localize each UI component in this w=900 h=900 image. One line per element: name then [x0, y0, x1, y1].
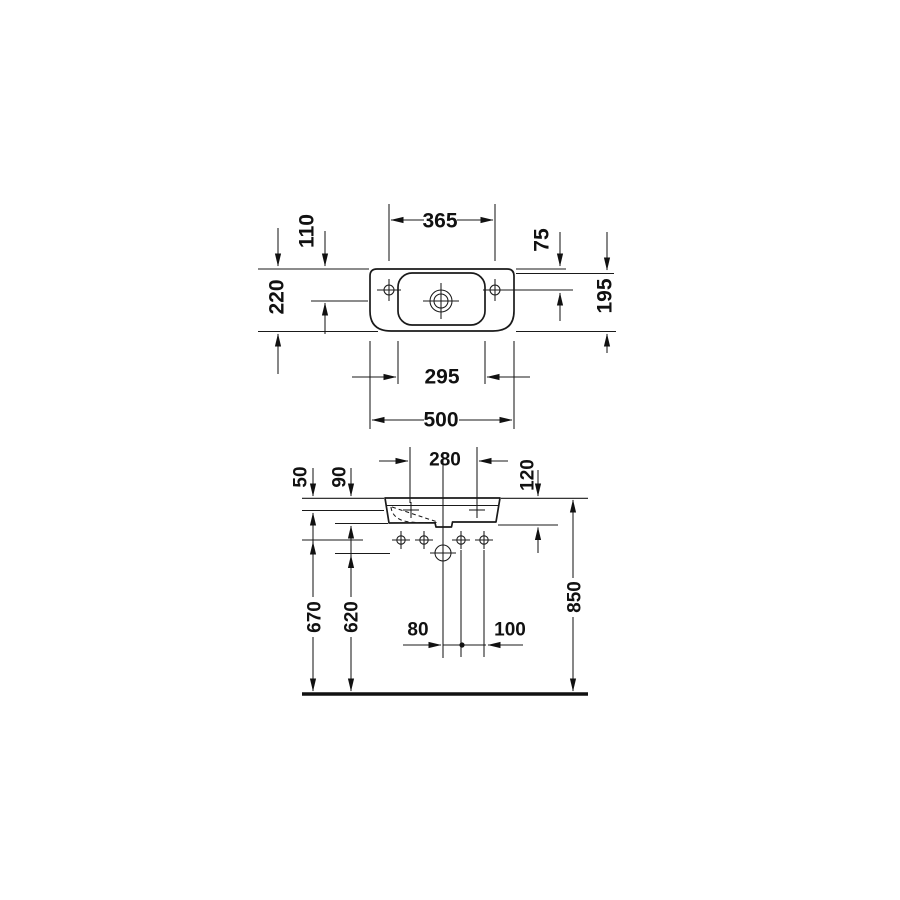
dim-label-365: 365	[422, 210, 457, 233]
plan-view: 365 110 220 75 195	[258, 204, 617, 432]
dim-label-110: 110	[296, 214, 319, 248]
dim-center-hole-from-back: 110	[296, 214, 326, 334]
dim-label-500: 500	[423, 409, 458, 432]
dim-label-100: 100	[494, 620, 526, 641]
dim-label-90: 90	[330, 466, 351, 487]
dim-label-220: 220	[266, 279, 289, 314]
dim-label-280: 280	[429, 450, 461, 471]
dim-faucet-hole-spacing: 365	[389, 204, 495, 261]
dim-rim-above-floor: 850	[565, 500, 586, 691]
center-tap-hole	[423, 283, 459, 319]
right-faucet-hole	[483, 279, 507, 301]
chain-dimension-dot	[459, 642, 464, 647]
dim-label-80: 80	[407, 620, 428, 641]
dim-label-670: 670	[305, 601, 326, 633]
washbasin-dimension-drawing: 365 110 220 75 195	[0, 0, 900, 900]
basin-outline-plan	[370, 269, 514, 331]
dim-bowl-to-front-edge: 195	[594, 232, 617, 353]
dim-fixing-holes-from-rim: 50	[291, 466, 314, 544]
technical-drawing-page: 365 110 220 75 195	[0, 0, 900, 900]
front-extension-lines-left	[302, 498, 390, 553]
dim-body-height-front: 120	[518, 459, 539, 553]
front-view: 280 50 90 120 670 620	[291, 447, 589, 694]
dim-side-hole-from-back: 75	[531, 228, 561, 321]
dim-label-295: 295	[424, 366, 459, 389]
dim-drain-and-bracket-offsets: 80 100	[403, 550, 526, 657]
dim-overall-depth: 220	[266, 228, 289, 374]
dim-label-50: 50	[291, 466, 312, 487]
dim-bracket-holes-above-floor: 670	[305, 542, 326, 691]
dim-label-850: 850	[565, 581, 586, 613]
dim-label-195: 195	[594, 278, 617, 313]
dim-drain-above-floor: 620	[342, 556, 363, 692]
dim-body-height-back: 90	[330, 466, 352, 557]
dim-label-620: 620	[342, 601, 363, 633]
dim-inner-bowl-width: 295	[352, 341, 530, 389]
front-extension-lines-right	[498, 498, 588, 525]
fixing-hole-marks	[403, 502, 485, 518]
hidden-bowl-profile	[391, 507, 437, 523]
dim-label-120: 120	[518, 459, 539, 491]
dim-label-75: 75	[531, 228, 554, 252]
